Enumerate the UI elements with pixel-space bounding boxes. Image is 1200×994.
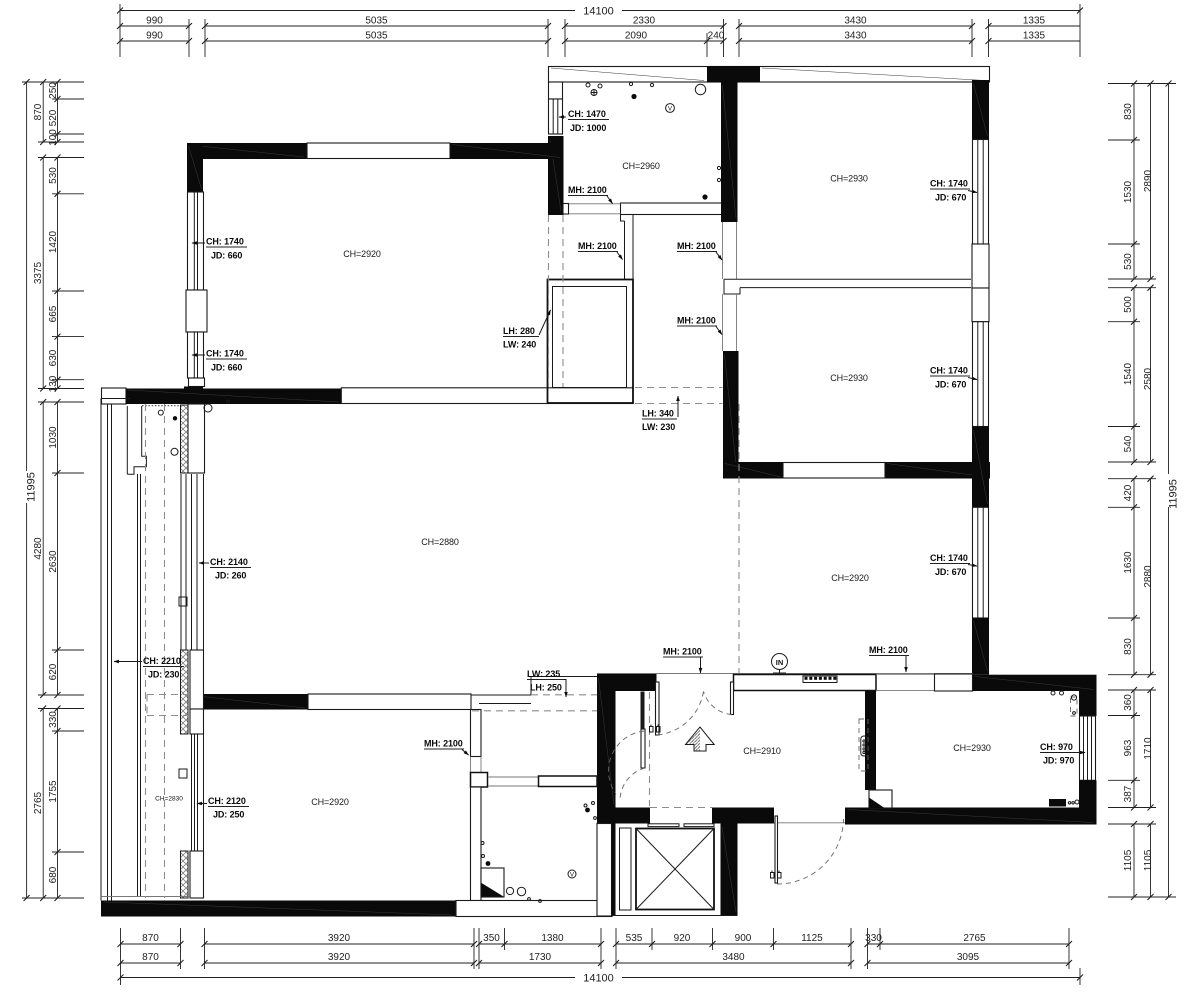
svg-text:MH: 2100: MH: 2100 <box>578 241 617 251</box>
svg-text:2765: 2765 <box>963 933 986 944</box>
svg-text:963: 963 <box>1123 739 1134 756</box>
svg-text:2090: 2090 <box>625 31 648 42</box>
svg-text:500: 500 <box>1123 296 1134 313</box>
svg-text:2330: 2330 <box>633 16 656 27</box>
svg-text:MH: 2100: MH: 2100 <box>677 241 716 251</box>
svg-text:2765: 2765 <box>33 791 44 814</box>
svg-text:3430: 3430 <box>844 31 867 42</box>
svg-text:CH=2920: CH=2920 <box>311 797 349 807</box>
svg-text:1710: 1710 <box>1143 737 1154 760</box>
svg-text:1125: 1125 <box>801 933 823 944</box>
svg-text:14100: 14100 <box>583 6 614 18</box>
svg-text:920: 920 <box>674 933 691 944</box>
svg-text:CH=2930: CH=2930 <box>830 174 868 184</box>
svg-text:JD: 250: JD: 250 <box>213 810 244 820</box>
svg-text:360: 360 <box>1123 694 1134 711</box>
svg-text:CH: 2120: CH: 2120 <box>208 796 246 806</box>
svg-text:830: 830 <box>1123 103 1134 120</box>
svg-text:870: 870 <box>142 952 159 963</box>
svg-text:530: 530 <box>48 167 59 184</box>
svg-text:11995: 11995 <box>26 472 38 502</box>
svg-text:CH: 970: CH: 970 <box>1040 742 1073 752</box>
svg-text:130: 130 <box>48 375 59 392</box>
svg-text:LH: 250: LH: 250 <box>530 683 562 693</box>
svg-text:387: 387 <box>1123 785 1134 802</box>
svg-text:990: 990 <box>146 31 163 42</box>
svg-text:JD: 230: JD: 230 <box>148 670 179 680</box>
svg-text:620: 620 <box>48 663 59 680</box>
svg-text:CH=2930: CH=2930 <box>830 373 868 383</box>
svg-text:1630: 1630 <box>1123 551 1134 574</box>
svg-text:JD: 660: JD: 660 <box>211 251 242 261</box>
svg-text:3095: 3095 <box>957 952 980 963</box>
svg-text:3430: 3430 <box>844 16 867 27</box>
svg-text:JD: 260: JD: 260 <box>215 571 246 581</box>
svg-text:1420: 1420 <box>48 230 59 253</box>
svg-text:CH: 2140: CH: 2140 <box>210 557 248 567</box>
svg-text:CH=2960: CH=2960 <box>622 161 660 171</box>
svg-text:830: 830 <box>1123 638 1134 655</box>
svg-text:1030: 1030 <box>48 426 59 449</box>
svg-text:1530: 1530 <box>1123 180 1134 203</box>
svg-text:535: 535 <box>626 933 643 944</box>
svg-text:CH=2930: CH=2930 <box>953 743 991 753</box>
svg-text:JD: 660: JD: 660 <box>211 363 242 373</box>
svg-text:CH=2910: CH=2910 <box>743 746 781 756</box>
svg-text:5035: 5035 <box>365 16 388 27</box>
svg-text:2630: 2630 <box>48 550 59 573</box>
svg-text:1755: 1755 <box>48 780 59 803</box>
svg-text:CH: 1470: CH: 1470 <box>568 109 606 119</box>
svg-text:CH: 2210: CH: 2210 <box>143 656 181 666</box>
svg-text:MH: 2100: MH: 2100 <box>424 739 463 749</box>
svg-text:530: 530 <box>1123 253 1134 270</box>
svg-text:MH: 2100: MH: 2100 <box>677 316 716 326</box>
svg-text:11995: 11995 <box>1168 479 1180 509</box>
svg-text:JD: 670: JD: 670 <box>935 567 966 577</box>
svg-text:CH: 1740: CH: 1740 <box>930 179 968 189</box>
svg-text:520: 520 <box>48 109 59 126</box>
svg-text:870: 870 <box>33 103 44 120</box>
svg-text:V: V <box>668 107 672 113</box>
svg-text:CH: 1740: CH: 1740 <box>930 553 968 563</box>
svg-text:JD: 1000: JD: 1000 <box>570 123 606 133</box>
svg-text:1105: 1105 <box>1143 849 1154 871</box>
svg-text:2880: 2880 <box>1143 565 1154 588</box>
svg-text:3480: 3480 <box>722 952 745 963</box>
svg-text:900: 900 <box>735 933 752 944</box>
svg-text:MH: 2100: MH: 2100 <box>568 185 607 195</box>
svg-text:LH: 280: LH: 280 <box>503 326 535 336</box>
svg-text:CH=2920: CH=2920 <box>831 573 869 583</box>
svg-text:990: 990 <box>146 16 163 27</box>
svg-text:3375: 3375 <box>33 261 44 284</box>
svg-text:1105: 1105 <box>1123 849 1134 871</box>
svg-text:2890: 2890 <box>1143 169 1154 192</box>
svg-text:2580: 2580 <box>1143 367 1154 390</box>
svg-text:MH: 2100: MH: 2100 <box>663 647 702 657</box>
svg-text:665: 665 <box>48 305 59 322</box>
svg-text:1380: 1380 <box>541 933 564 944</box>
svg-text:MH: 2100: MH: 2100 <box>869 645 908 655</box>
svg-text:870: 870 <box>142 933 159 944</box>
svg-text:5035: 5035 <box>365 31 388 42</box>
svg-text:250: 250 <box>48 82 59 99</box>
svg-text:680: 680 <box>48 866 59 883</box>
svg-text:4280: 4280 <box>33 537 44 560</box>
svg-text:1730: 1730 <box>529 952 552 963</box>
svg-text:CH: 1740: CH: 1740 <box>930 366 968 376</box>
svg-text:330: 330 <box>48 711 59 728</box>
svg-text:3920: 3920 <box>328 933 351 944</box>
svg-text:1540: 1540 <box>1123 362 1134 385</box>
svg-text:CH=2880: CH=2880 <box>421 537 459 547</box>
svg-text:JD: 670: JD: 670 <box>935 380 966 390</box>
svg-text:CH=2830: CH=2830 <box>155 796 183 803</box>
svg-text:JD: 970: JD: 970 <box>1043 756 1074 766</box>
svg-text:100: 100 <box>48 129 59 146</box>
svg-text:1335: 1335 <box>1023 16 1046 27</box>
svg-text:CH: 1740: CH: 1740 <box>206 349 244 359</box>
svg-text:LW: 240: LW: 240 <box>503 340 536 350</box>
svg-text:LH: 340: LH: 340 <box>642 409 674 419</box>
svg-text:240: 240 <box>708 31 725 42</box>
svg-text:IN: IN <box>776 658 784 667</box>
svg-text:CH=2920: CH=2920 <box>343 249 381 259</box>
svg-text:3920: 3920 <box>328 952 351 963</box>
svg-text:1335: 1335 <box>1023 31 1046 42</box>
svg-text:420: 420 <box>1123 484 1134 501</box>
svg-text:JD: 670: JD: 670 <box>935 193 966 203</box>
svg-text:14100: 14100 <box>583 973 614 985</box>
svg-text:330: 330 <box>865 933 882 944</box>
svg-text:630: 630 <box>48 349 59 366</box>
svg-text:LW: 235: LW: 235 <box>527 669 560 679</box>
svg-text:LW: 230: LW: 230 <box>642 422 675 432</box>
svg-text:350: 350 <box>483 933 500 944</box>
svg-text:V: V <box>570 873 574 879</box>
svg-text:CH: 1740: CH: 1740 <box>206 237 244 247</box>
svg-text:540: 540 <box>1123 435 1134 452</box>
